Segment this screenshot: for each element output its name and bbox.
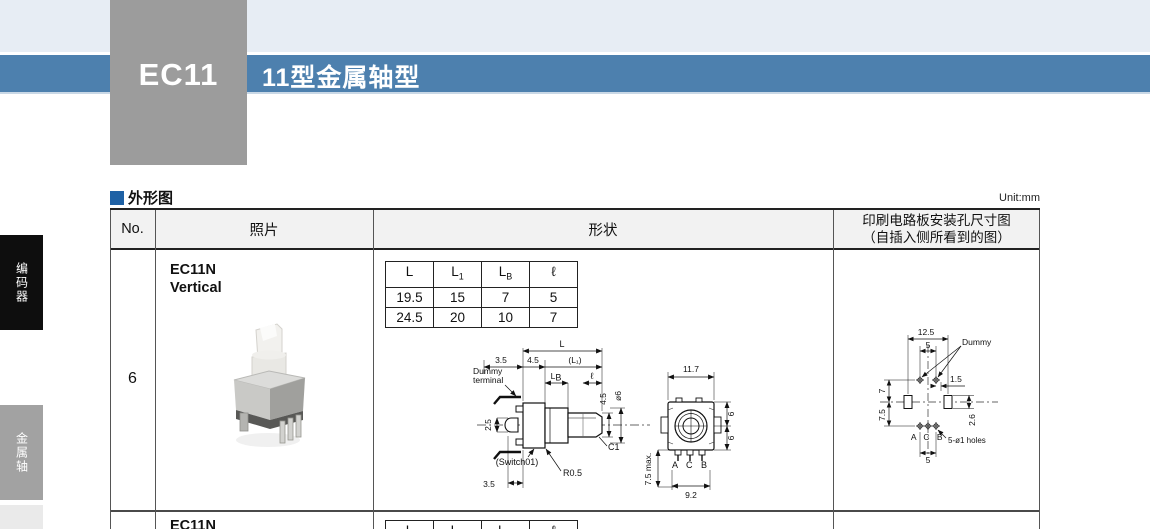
pcb-hole-drawing: 12.5 5 Dummy 1.5 7 7.5 2.6 A C B 5-ø1 ho… [865,322,1010,467]
table-row-separator [110,510,1040,512]
table-column-line-1 [155,210,156,529]
svg-text:6: 6 [726,435,736,440]
dimension-table-header-row: L L1 LB ℓ [386,521,578,529]
svg-text:12.5: 12.5 [918,327,935,337]
sidebar-tab-strip [0,505,43,529]
dimension-table: L L1 LB ℓ 19.5 15 7 5 24.5 20 10 7 [385,261,578,328]
next-row-model-name: EC11N [170,518,216,529]
column-header-photo: 照片 [155,210,373,248]
section-heading: 外形图 [110,187,173,208]
dim-col-L1: L1 [434,521,482,529]
svg-text:7: 7 [877,388,887,393]
dim-cell: 5 [530,287,578,307]
dim-cell: 24.5 [386,307,434,327]
banner-title: 11型金属轴型 [262,58,420,94]
table-header-bottom-border [110,248,1040,250]
dim-cell: 20 [434,307,482,327]
svg-text:7.5 max.: 7.5 max. [643,453,653,486]
dim-col-LB: LB [482,521,530,529]
svg-text:7.5: 7.5 [877,409,887,421]
svg-text:5: 5 [926,455,931,465]
table-right-border [1039,210,1040,529]
column-header-pcb-line2: （自插入侧所看到的图） [862,229,1011,246]
product-code: EC11 [110,57,247,93]
column-header-no: No. [110,210,155,248]
heading-square-icon [110,191,124,205]
section-heading-label: 外形图 [128,187,173,208]
svg-text:2.6: 2.6 [967,414,977,426]
svg-text:5-ø1 holes: 5-ø1 holes [948,436,986,445]
dim-col-ell: ℓ [530,262,578,288]
svg-text:L: L [559,339,564,349]
dim-col-LB: LB [482,262,530,288]
dim-cell: 19.5 [386,287,434,307]
dim-cell: 10 [482,307,530,327]
column-header-pcb: 印刷电路板安装孔尺寸图 （自插入侧所看到的图） [833,210,1040,248]
model-block: EC11N Vertical [170,261,222,297]
dim-col-L: L [386,262,434,288]
dimension-table-header-row: L L1 LB ℓ [386,262,578,288]
model-orientation: Vertical [170,279,222,297]
svg-text:ℓ: ℓ [591,371,595,381]
sidebar-tab-encoder[interactable]: 编码器 [0,235,43,330]
outline-drawing: L 3.5 4.5 (L₁) Dummy terminal LB ℓ 2.5 4… [410,332,770,504]
svg-text:ø6: ø6 [613,391,623,401]
column-header-pcb-line1: 印刷电路板安装孔尺寸图 [862,212,1011,229]
sidebar-tab-metal-shaft-label: 金属轴 [16,432,28,474]
svg-text:(Switch01): (Switch01) [496,457,539,467]
row-number: 6 [110,370,155,388]
table-column-line-2 [373,210,374,529]
svg-text:4.5: 4.5 [598,393,608,405]
sidebar-tab-metal-shaft[interactable]: 金属轴 [0,405,43,500]
svg-text:LB: LB [551,371,562,383]
dim-cell: 7 [530,307,578,327]
dim-col-L1: L1 [434,262,482,288]
dimension-table-row: 24.5 20 10 7 [386,307,578,327]
dim-col-ell: ℓ [530,521,578,529]
svg-text:A C B: A C B [672,460,710,470]
svg-text:4.5: 4.5 [527,355,539,365]
sidebar-tab-encoder-label: 编码器 [16,262,28,304]
model-name: EC11N [170,261,222,279]
dim-cell: 7 [482,287,530,307]
svg-text:terminal: terminal [473,375,503,385]
svg-text:2.5: 2.5 [483,419,493,431]
svg-text:A C B: A C B [911,432,945,442]
unit-label: Unit:mm [930,192,1040,204]
product-photo [222,316,317,458]
svg-text:5: 5 [926,340,931,350]
column-header-shape: 形状 [373,210,833,248]
svg-text:R0.5: R0.5 [563,468,582,478]
svg-text:6: 6 [726,411,736,416]
catalog-page: 11型金属轴型 EC11 编码器 金属轴 外形图 Unit:mm No. 照片 … [0,0,1150,529]
svg-text:9.2: 9.2 [685,490,697,500]
dim-col-L: L [386,521,434,529]
dim-cell: 15 [434,287,482,307]
svg-text:3.5: 3.5 [483,479,495,489]
table-column-line-3 [833,210,834,529]
svg-text:Dummy: Dummy [962,337,992,347]
svg-text:11.7: 11.7 [683,364,699,374]
svg-text:C1: C1 [608,442,620,452]
svg-text:1.5: 1.5 [950,374,962,384]
next-row-dimension-table: L L1 LB ℓ [385,520,578,529]
dimension-table-row: 19.5 15 7 5 [386,287,578,307]
svg-text:3.5: 3.5 [495,355,507,365]
svg-text:(L₁): (L₁) [568,355,581,365]
